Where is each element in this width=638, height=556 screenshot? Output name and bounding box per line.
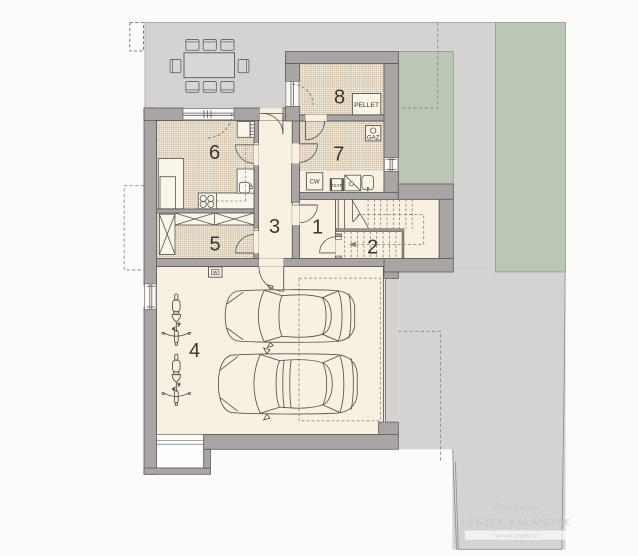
svg-text:4: 4	[189, 340, 200, 362]
svg-text:1: 1	[312, 217, 323, 239]
svg-text:CW: CW	[309, 179, 319, 186]
svg-text:Pracownia: Pracownia	[494, 502, 538, 513]
svg-text:ZSYP: ZSYP	[331, 183, 343, 188]
svg-text:2: 2	[367, 237, 378, 259]
svg-text:6: 6	[209, 142, 220, 164]
svg-text:LESZEK KALANDYK: LESZEK KALANDYK	[462, 518, 571, 529]
svg-text:PELLET: PELLET	[354, 102, 379, 109]
svg-text:www.lk-projekt.pl: www.lk-projekt.pl	[495, 534, 538, 540]
svg-text:7: 7	[333, 143, 344, 165]
svg-text:5: 5	[209, 234, 220, 256]
svg-text:3: 3	[269, 216, 280, 238]
svg-text:GAZ: GAZ	[367, 134, 380, 141]
svg-text:8: 8	[334, 86, 345, 108]
